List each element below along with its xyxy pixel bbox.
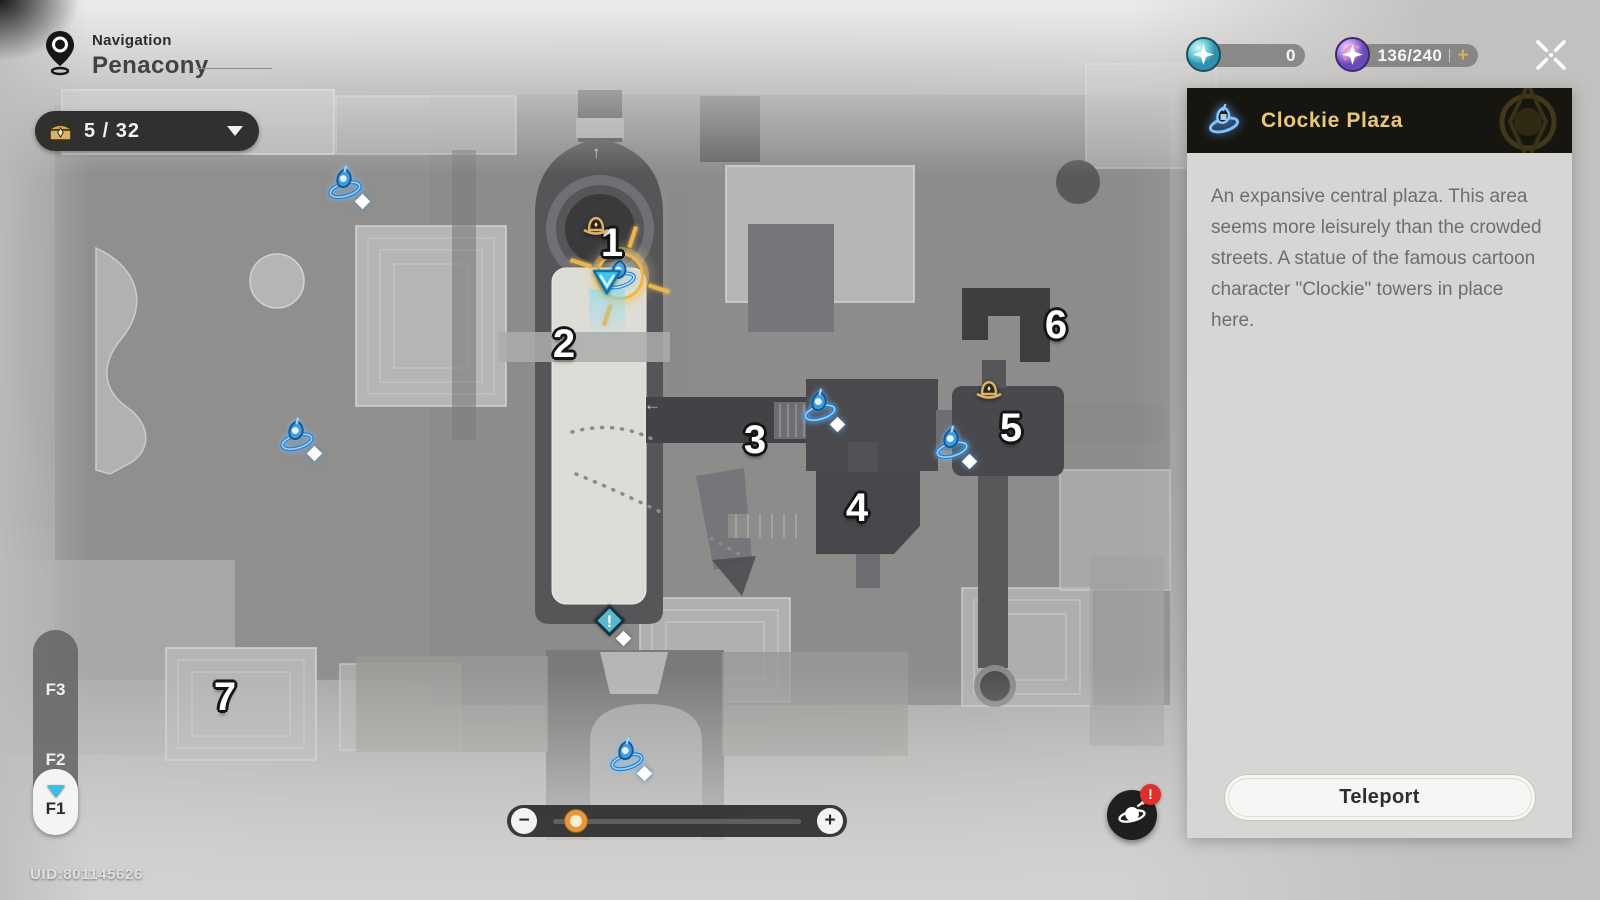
close-button[interactable]: [1532, 36, 1570, 74]
header-emblem-decor: [1480, 88, 1566, 153]
zoom-track[interactable]: [553, 819, 801, 824]
map-screen: ←↑: [0, 0, 1600, 900]
map-zoom-slider: − +: [507, 805, 847, 837]
chest-counter-dropdown[interactable]: 5 / 32: [35, 111, 259, 151]
map-marker-5[interactable]: 5: [1000, 408, 1022, 448]
teleport-anchor-icon[interactable]: [931, 424, 973, 466]
teleport-button[interactable]: Teleport: [1224, 774, 1536, 821]
floor-button-f1-active[interactable]: F1: [33, 769, 78, 835]
chevron-down-icon: [227, 126, 243, 136]
clockie-event-button[interactable]: !: [1107, 790, 1157, 840]
map-marker-6[interactable]: 6: [1045, 305, 1067, 345]
panel-header: Clockie Plaza: [1187, 88, 1572, 153]
alert-glyph: !: [598, 609, 621, 634]
teleport-button-label: Teleport: [1339, 786, 1420, 809]
navigation-header: Navigation Penacony: [44, 30, 209, 80]
chest-icon: [47, 119, 74, 143]
clockie-statue-icon[interactable]: [581, 213, 611, 241]
add-currency-button[interactable]: +: [1457, 46, 1469, 65]
fuel-orb-icon: [1185, 36, 1222, 73]
chest-counter-value: 5 / 32: [84, 120, 140, 143]
close-icon: [1532, 36, 1570, 74]
currency-fuel[interactable]: 0: [1185, 41, 1307, 69]
active-floor-label: F1: [46, 799, 66, 819]
gold-hat-glyph: [974, 377, 1004, 405]
teleport-anchor-icon[interactable]: [324, 164, 366, 206]
currency-power-value: 136/240: [1377, 46, 1442, 66]
pill-divider: [1449, 49, 1450, 62]
world-title: Penacony: [92, 52, 209, 80]
player-beam: [589, 289, 625, 337]
nav-label: Navigation: [92, 32, 209, 49]
map-pin-icon: [44, 30, 76, 76]
event-alert-marker[interactable]: !: [590, 602, 630, 642]
currency-fuel-value: 0: [1286, 46, 1296, 66]
location-description: An expansive central plaza. This area se…: [1187, 153, 1572, 336]
floor-selector: F3 F2 F1: [33, 630, 78, 835]
zoom-in-button[interactable]: +: [817, 808, 843, 834]
map-marker-7[interactable]: 7: [214, 677, 236, 717]
teleport-anchor-icon[interactable]: [606, 736, 648, 778]
zoom-out-button[interactable]: −: [511, 808, 537, 834]
floor-button-f2[interactable]: F2: [33, 750, 78, 770]
chevron-down-icon: [47, 785, 65, 797]
player-marker: [585, 269, 629, 339]
clockie-statue-icon[interactable]: [974, 377, 1004, 405]
gold-hat-glyph: [581, 213, 611, 241]
floor-button-f3[interactable]: F3: [33, 680, 78, 700]
notification-badge: !: [1140, 784, 1161, 805]
map-marker-2[interactable]: 2: [553, 324, 575, 364]
teleport-anchor-icon[interactable]: [276, 416, 318, 458]
location-title: Clockie Plaza: [1261, 109, 1403, 133]
map-marker-4[interactable]: 4: [846, 488, 868, 528]
zoom-knob[interactable]: [565, 810, 587, 832]
uid-label: UID:801145626: [30, 866, 143, 883]
space-anchor-icon: [1205, 103, 1243, 139]
map-marker-3[interactable]: 3: [744, 420, 766, 460]
location-detail-panel: Clockie Plaza An expansive central plaza…: [1187, 88, 1572, 838]
player-arrow-icon: [591, 269, 623, 295]
teleport-anchor-icon[interactable]: [799, 387, 841, 429]
clockie-hat-icon: [1116, 799, 1148, 831]
trailblaze-power-orb-icon: [1334, 36, 1371, 73]
title-underline: [196, 68, 272, 69]
currency-trailblaze-power[interactable]: 136/240 +: [1334, 41, 1480, 69]
